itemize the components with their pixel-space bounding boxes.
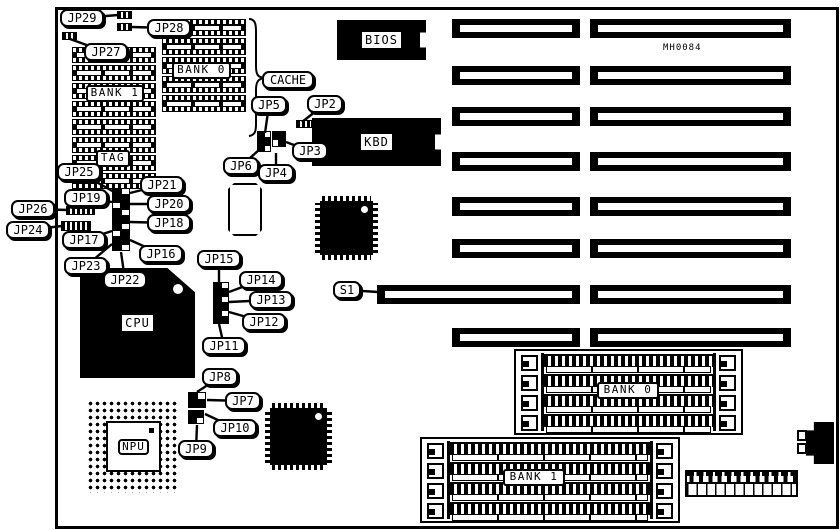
simm-rail <box>650 441 653 519</box>
cache-dip-chip <box>72 119 156 135</box>
callout-s1: S1 <box>333 281 361 299</box>
callout-jp29: JP29 <box>60 9 104 27</box>
callout-jp16: JP16 <box>139 245 183 263</box>
slot-opening <box>385 291 572 298</box>
cpu-label: CPU <box>122 315 153 331</box>
slot-opening <box>598 203 783 210</box>
jp11-15-block <box>213 282 229 324</box>
npu-pin1-dot <box>149 428 154 433</box>
simm-latch <box>427 483 444 499</box>
callout-jp4: JP4 <box>258 164 294 182</box>
simm-socket-body <box>546 406 711 413</box>
npu-socket-center: NPU <box>106 421 161 472</box>
jp28-jumper <box>117 23 132 31</box>
slot-opening <box>460 245 572 252</box>
keyboard-connector-pin <box>797 443 807 454</box>
jp5-block-b <box>272 131 286 147</box>
simm-rail <box>447 441 450 519</box>
slot-opening <box>460 25 572 32</box>
callout-jp23: JP23 <box>64 257 108 275</box>
label-simm-bank0: BANK 0 <box>597 382 659 399</box>
callout-jp19: JP19 <box>64 189 108 207</box>
simm-socket-body <box>452 514 648 521</box>
simm-latch <box>656 483 673 499</box>
slot-short-6 <box>452 239 580 258</box>
simm-latch <box>427 463 444 479</box>
slot-long-2 <box>590 66 791 85</box>
jp24-jumper <box>61 221 91 231</box>
keyboard-controller-chip: KBD <box>312 118 441 166</box>
simm-latch <box>427 443 444 459</box>
power-connector <box>685 470 798 497</box>
slot-opening <box>460 72 572 79</box>
simm-latch <box>719 375 736 391</box>
simm-socket-body <box>452 454 648 461</box>
cache-dip-chip <box>162 95 246 112</box>
simm-socket-body <box>452 494 648 501</box>
simm-latch <box>521 395 538 411</box>
qfp-chipset-upper <box>315 196 378 260</box>
slot-short-1 <box>452 19 580 38</box>
slot-short-2 <box>452 66 580 85</box>
cpu-pin1-dot <box>173 284 183 294</box>
callout-jp24: JP24 <box>6 221 50 239</box>
slot-long-8 <box>590 328 791 347</box>
slot-short-4 <box>452 152 580 171</box>
callout-jp21: JP21 <box>140 176 184 194</box>
slot-short-5 <box>452 197 580 216</box>
slot-short-7 <box>377 285 580 304</box>
simm-latch <box>656 503 673 519</box>
callout-jp20: JP20 <box>147 195 191 213</box>
label-cache-bank0: BANK 0 <box>172 62 231 79</box>
simm-rail <box>713 353 716 431</box>
cache-dip-chip <box>72 65 156 81</box>
slot-opening <box>598 158 783 165</box>
slot-long-4 <box>590 152 791 171</box>
label-tag: TAG <box>96 150 130 167</box>
jp26-jumper <box>66 206 95 215</box>
simm-socket-body <box>546 366 711 373</box>
slot-opening <box>598 291 783 298</box>
callout-jp10: JP10 <box>213 419 257 437</box>
callout-jp13: JP13 <box>249 291 293 309</box>
simm-rail <box>541 353 544 431</box>
cache-dip-chip <box>162 38 246 55</box>
slot-opening <box>460 113 572 120</box>
callout-jp15: JP15 <box>197 250 241 268</box>
bios-chip: BIOS <box>337 20 426 60</box>
slot-opening <box>598 245 783 252</box>
slot-short-3 <box>452 107 580 126</box>
jp5-block-a <box>257 131 271 152</box>
callout-jp11: JP11 <box>202 337 246 355</box>
callout-jp26: JP26 <box>11 200 55 218</box>
simm-latch <box>656 463 673 479</box>
callout-jp27: JP27 <box>84 43 128 61</box>
slot-opening <box>598 334 783 341</box>
label-simm-bank1: BANK 1 <box>503 469 565 486</box>
callout-jp22: JP22 <box>103 271 147 289</box>
kbd-label: KBD <box>361 134 392 150</box>
callout-cache: CACHE <box>262 71 314 89</box>
qfp-chipset-lower <box>265 403 332 470</box>
simm-latch <box>521 355 538 371</box>
slot-opening <box>598 72 783 79</box>
callout-jp17: JP17 <box>62 231 106 249</box>
jp2-jumper <box>296 120 312 128</box>
simm-latch <box>719 355 736 371</box>
jp9-10-block <box>188 410 204 424</box>
simm-latch <box>521 375 538 391</box>
keyboard-connector-pin <box>797 430 807 441</box>
slot-long-5 <box>590 197 791 216</box>
slot-long-3 <box>590 107 791 126</box>
slot-long-7 <box>590 285 791 304</box>
npu-label: NPU <box>118 439 149 455</box>
simm-latch <box>719 415 736 431</box>
callout-jp7: JP7 <box>225 392 261 410</box>
jp29-jumper <box>117 11 132 19</box>
simm-socket-body <box>546 426 711 433</box>
simm-latch <box>521 415 538 431</box>
callout-jp3: JP3 <box>292 142 328 160</box>
slot-long-6 <box>590 239 791 258</box>
board-id-text: MH0084 <box>663 43 702 53</box>
jp27-jumper <box>62 32 77 40</box>
slot-opening <box>598 113 783 120</box>
simm-latch <box>719 395 736 411</box>
kbd-chip-notch <box>435 135 441 150</box>
callout-jp18: JP18 <box>147 214 191 232</box>
bios-label: BIOS <box>362 32 401 48</box>
callout-jp12: JP12 <box>242 313 286 331</box>
callout-jp28: JP28 <box>147 19 191 37</box>
callout-jp8: JP8 <box>202 368 238 386</box>
callout-jp6: JP6 <box>223 157 259 175</box>
label-cache-bank1: BANK 1 <box>86 85 144 102</box>
callout-jp2: JP2 <box>307 95 343 113</box>
slot-opening <box>460 334 572 341</box>
qfp-pin1-dot <box>315 413 322 420</box>
cache-dip-chip <box>72 101 156 117</box>
bios-chip-notch <box>420 33 426 48</box>
slot-long-1 <box>590 19 791 38</box>
center-jumper-block <box>112 188 130 251</box>
npu-socket: NPU <box>86 399 178 493</box>
slot-short-8 <box>452 328 580 347</box>
callout-jp14: JP14 <box>239 271 283 289</box>
slot-opening <box>460 203 572 210</box>
slot-opening <box>598 25 783 32</box>
callout-jp5: JP5 <box>251 96 287 114</box>
callout-jp25: JP25 <box>57 163 101 181</box>
simm-latch <box>656 443 673 459</box>
callout-jp9: JP9 <box>178 440 214 458</box>
qfp-pin1-dot <box>361 206 368 213</box>
motherboard-diagram: BIOS KBD CPU NPU MH0084 JP29JP28JP27CACH… <box>0 0 840 530</box>
oscillator-socket <box>228 183 262 236</box>
jp7-8-block <box>188 392 206 408</box>
simm-latch <box>427 503 444 519</box>
slot-opening <box>460 158 572 165</box>
